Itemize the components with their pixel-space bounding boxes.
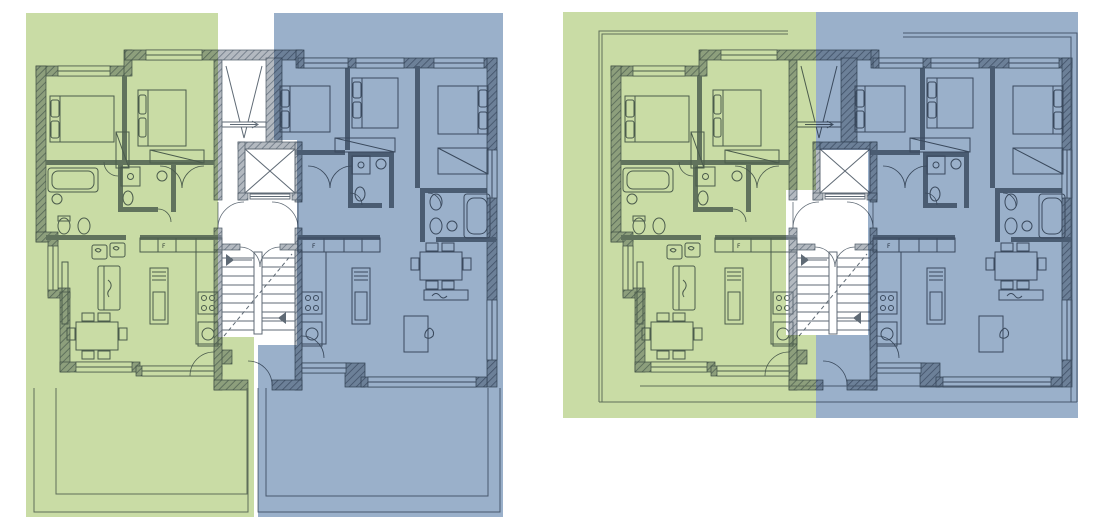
unit-b-region-right <box>816 12 1078 418</box>
floor-plans-svg: F <box>0 0 1101 523</box>
floor-plan-left <box>26 13 503 517</box>
floor-plans-canvas: F <box>0 0 1101 523</box>
unit-a-region-right <box>563 12 816 418</box>
floor-plan-right <box>563 12 1078 418</box>
